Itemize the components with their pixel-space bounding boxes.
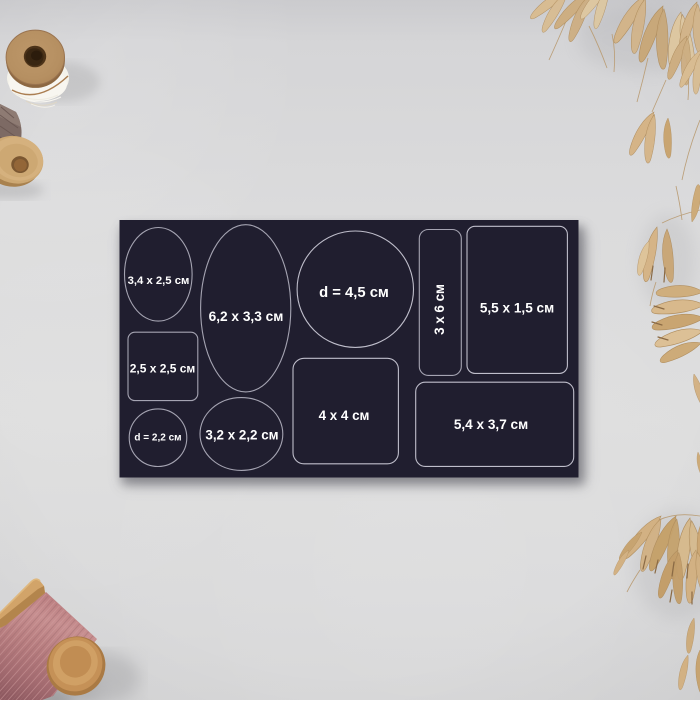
svg-text:4 x 4 см: 4 x 4 см	[319, 408, 370, 423]
svg-text:3 x 6 см: 3 x 6 см	[432, 284, 447, 335]
svg-text:6,2 x 3,3 см: 6,2 x 3,3 см	[209, 309, 284, 324]
svg-text:d = 2,2 см: d = 2,2 см	[134, 432, 181, 443]
svg-text:5,5 x 1,5 см: 5,5 x 1,5 см	[480, 301, 554, 316]
svg-text:3,2 x 2,2 см: 3,2 x 2,2 см	[205, 427, 278, 442]
svg-text:2,5 x 2,5 см: 2,5 x 2,5 см	[130, 361, 196, 375]
svg-text:d = 4,5 см: d = 4,5 см	[319, 285, 389, 301]
svg-text:3,4 x 2,5 см: 3,4 x 2,5 см	[128, 275, 190, 287]
svg-text:5,4 x 3,7 см: 5,4 x 3,7 см	[454, 417, 528, 432]
